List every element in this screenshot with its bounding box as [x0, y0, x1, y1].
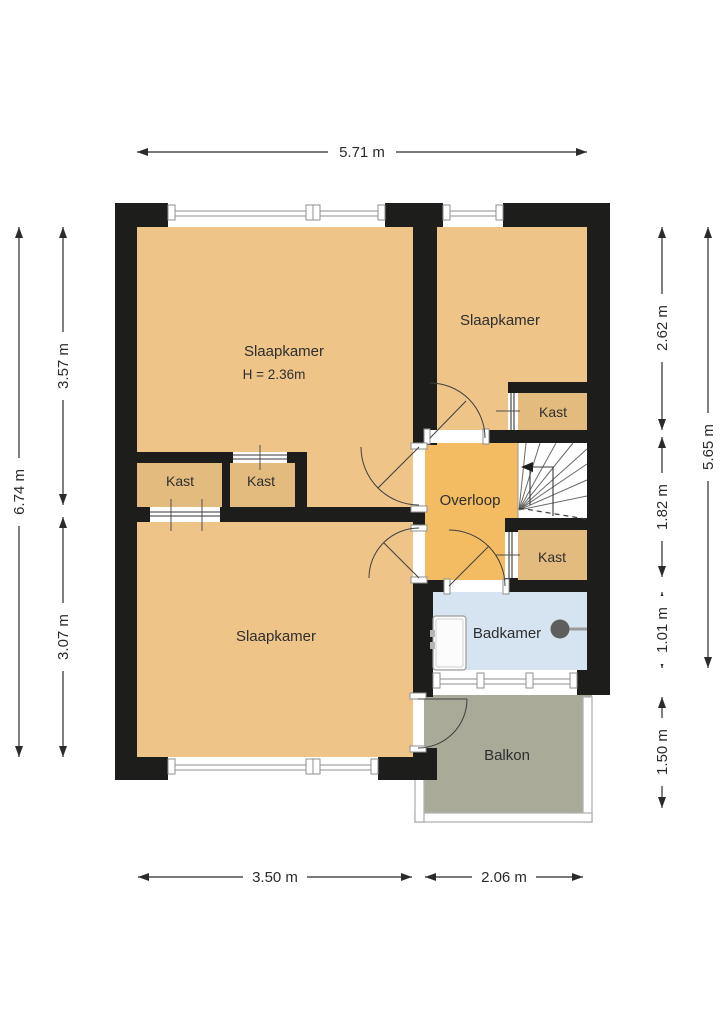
label-kast-left: Kast	[166, 473, 194, 489]
floor-plan-page: Slaapkamer H = 2.36m Slaapkamer Slaapkam…	[0, 0, 728, 1030]
dim-label-top-width: 5.71 m	[339, 144, 385, 161]
window-top-right-icon	[443, 203, 503, 227]
dimension-left-total: 6.74 m	[9, 227, 29, 757]
dimension-right-top: 2.62 m	[652, 227, 672, 430]
label-slaapkamer-top-right: Slaapkamer	[460, 312, 540, 329]
dim-label-left-lower: 3.07 m	[55, 614, 72, 660]
label-kast-middle: Kast	[247, 473, 275, 489]
dim-label-right-middle: 1.82 m	[654, 484, 671, 530]
dimension-right-middle: 1.82 m	[652, 437, 672, 577]
label-overloop: Overloop	[440, 492, 501, 509]
dim-label-bottom-left: 3.50 m	[252, 869, 298, 886]
window-badkamer-icon	[433, 670, 577, 695]
window-bottom-icon	[168, 757, 378, 780]
window-top-left-icon	[168, 203, 385, 227]
dimension-left-lower: 3.07 m	[53, 517, 73, 757]
label-slaapkamer-bottom: Slaapkamer	[236, 628, 316, 645]
dim-label-right-top: 2.62 m	[654, 305, 671, 351]
dim-label-left-total: 6.74 m	[11, 469, 28, 515]
dim-label-right-total: 5.65 m	[700, 424, 717, 470]
dimension-left-upper: 3.57 m	[53, 227, 73, 505]
label-ceiling-height: H = 2.36m	[243, 367, 306, 382]
label-slaapkamer-top-left: Slaapkamer	[244, 343, 324, 360]
dimension-right-balcony: 1.50 m	[652, 697, 672, 808]
label-kast-top-right: Kast	[539, 404, 567, 420]
label-balkon: Balkon	[484, 747, 530, 764]
label-badkamer: Badkamer	[473, 625, 541, 642]
dim-label-right-bathroom: 1.01 m	[654, 607, 671, 653]
dim-label-bottom-right: 2.06 m	[481, 869, 527, 886]
label-kast-bottom-right: Kast	[538, 549, 566, 565]
dimension-right-total: 5.65 m	[698, 227, 718, 668]
room-overloop	[425, 443, 518, 580]
bathtub-icon	[430, 616, 466, 670]
dim-label-left-upper: 3.57 m	[55, 343, 72, 389]
dimension-right-bathroom: 1.01 m	[652, 592, 672, 668]
floor-plan-drawing: Slaapkamer H = 2.36m Slaapkamer Slaapkam…	[0, 0, 728, 1030]
dimension-bottom-left: 3.50 m	[138, 866, 412, 887]
dimension-bottom-right: 2.06 m	[425, 866, 583, 887]
dim-label-right-balcony: 1.50 m	[654, 729, 671, 775]
dimension-top-width: 5.71 m	[137, 141, 587, 162]
